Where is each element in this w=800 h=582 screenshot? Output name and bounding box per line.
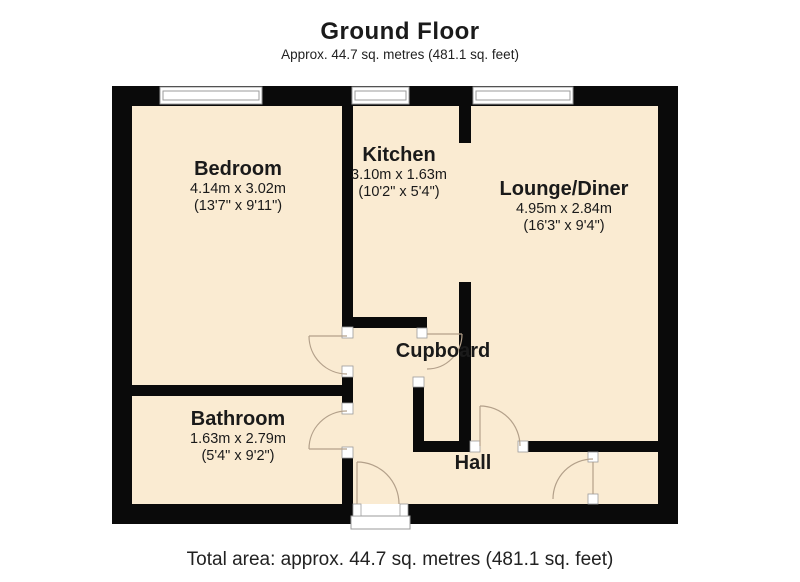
windows [160,87,573,104]
entrance-door-opening [351,504,410,529]
lounge-diner-name: Lounge/Diner [500,178,629,201]
bathroom-dims-metric: 1.63m x 2.79m [190,431,286,448]
room-label-bedroom: Bedroom 4.14m x 3.02m (13'7" x 9'11") [190,158,286,214]
room-label-cupboard: Cupboard [396,340,490,363]
room-label-lounge-diner: Lounge/Diner 4.95m x 2.84m (16'3" x 9'4"… [500,178,629,234]
lounge-diner-dims-metric: 4.95m x 2.84m [500,201,629,218]
total-area-label: Total area: approx. 44.7 sq. metres (481… [187,549,614,571]
bathroom-name: Bathroom [190,408,286,431]
window [160,87,262,104]
bedroom-dims-metric: 4.14m x 3.02m [190,181,286,198]
room-label-bathroom: Bathroom 1.63m x 2.79m (5'4" x 9'2") [190,408,286,464]
floorplan-drawing: Bedroom 4.14m x 3.02m (13'7" x 9'11") Ki… [0,0,800,582]
room-label-kitchen: Kitchen 3.10m x 1.63m (10'2" x 5'4") [351,144,447,200]
room-label-hall: Hall [455,452,492,475]
kitchen-dims-metric: 3.10m x 1.63m [351,167,447,184]
bathroom-dims-imperial: (5'4" x 9'2") [190,448,286,465]
hall-name: Hall [455,452,492,475]
cupboard-name: Cupboard [396,340,490,363]
bedroom-dims-imperial: (13'7" x 9'11") [190,198,286,215]
lounge-diner-dims-imperial: (16'3" x 9'4") [500,218,629,235]
floorplan-page: Ground Floor Approx. 44.7 sq. metres (48… [0,0,800,582]
window [473,87,573,104]
window [352,87,409,104]
bedroom-name: Bedroom [190,158,286,181]
kitchen-name: Kitchen [351,144,447,167]
kitchen-dims-imperial: (10'2" x 5'4") [351,184,447,201]
floorplan-svg [0,0,800,582]
